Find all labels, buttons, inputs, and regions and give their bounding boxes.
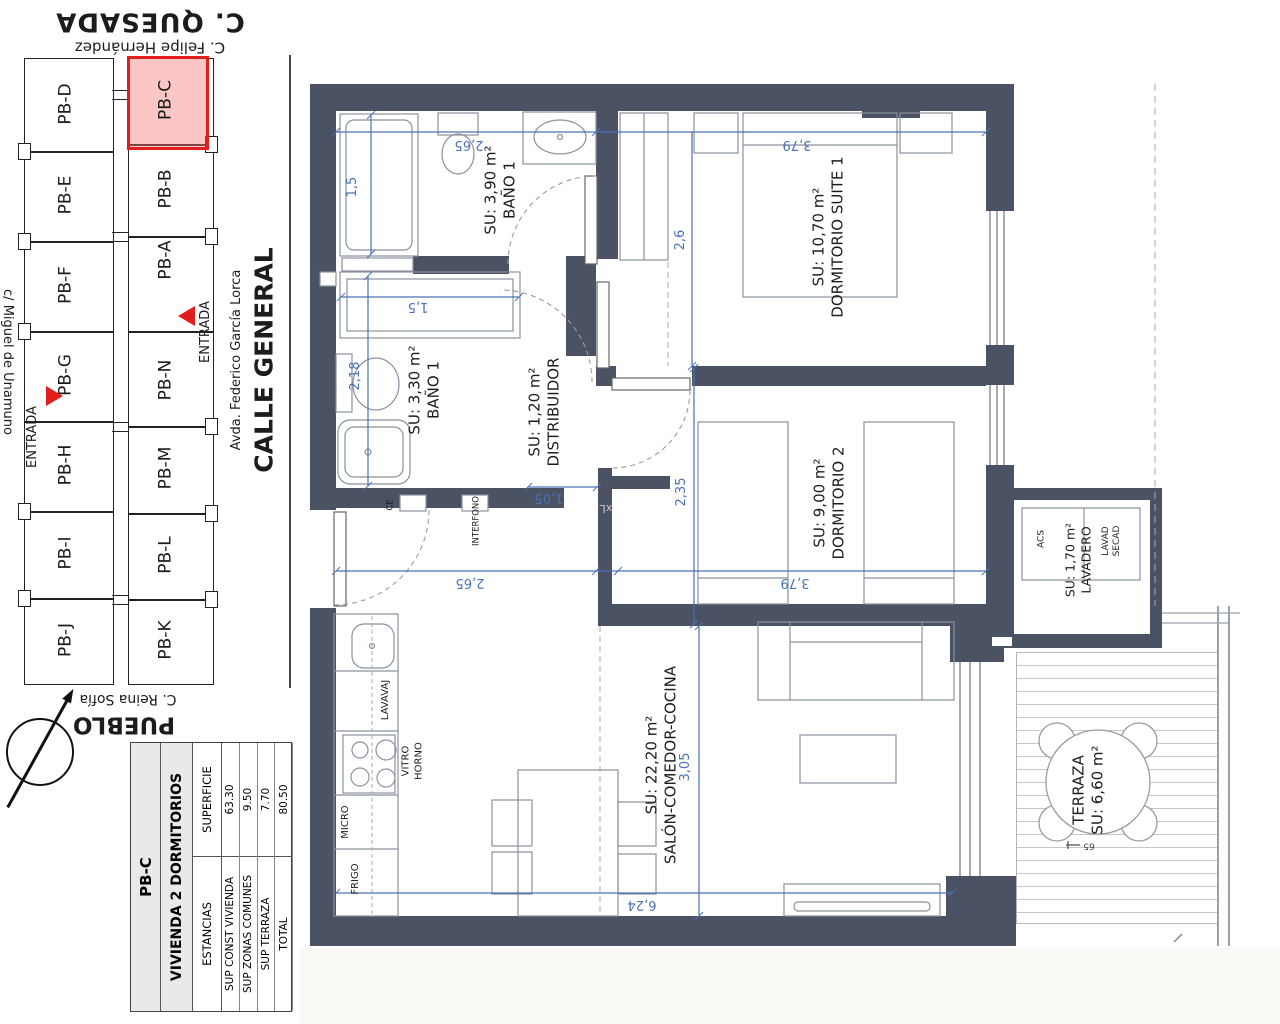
facade-notch (205, 591, 218, 608)
surface-table-col-rooms: ESTANCIAS (193, 856, 221, 1011)
walls (310, 84, 1162, 946)
washer-dryer-label: LAVADSECAD (1101, 526, 1124, 557)
street-top-label: C. QUESADA (55, 5, 245, 38)
corridor-connector (112, 595, 128, 605)
hob-oven-label: VITROHORNO (401, 742, 426, 780)
street-left-label: c/ Miguel de Unamuno (0, 289, 15, 435)
room-label-laundry: SU: 1,70 m²LAVADERO (1062, 523, 1093, 597)
dim-265-top: 2,65 (455, 136, 484, 152)
bed2-right (864, 422, 954, 604)
unit-label-pbf[interactable]: PB-F (55, 266, 76, 304)
unit-label-pbc[interactable]: PB-C (155, 80, 176, 120)
microwave-label: MICRO (340, 805, 353, 838)
entrance-left-label: ENTRADA (25, 406, 41, 468)
laundry-vent-opening (992, 637, 1012, 646)
facade-notch (205, 505, 218, 522)
nightstand-right (900, 113, 952, 153)
room-label-bedroom2: SU: 9,00 m²DORMITORIO 2 (810, 446, 848, 559)
street-top-sub-label: C. Felipe Hernández (75, 38, 225, 57)
dishwasher-label: LAVAVAJ (380, 680, 393, 720)
unit-label-pba[interactable]: PB-A (155, 240, 176, 279)
intercom-label: INTERFONO (472, 496, 483, 546)
surface-table: PB-C VIVIENDA 2 DORMITORIOS ESTANCIAS SU… (130, 742, 292, 1012)
corridor-connector (112, 232, 128, 242)
chair (492, 800, 532, 846)
surface-row: SUP ZONAS COMUNES9.50 (240, 743, 258, 1011)
surface-row: TOTAL80.50 (275, 743, 293, 1011)
room-label-suite: SU: 10,70 m²DORMITORIO SUITE 1 (809, 156, 847, 317)
room-label-hall: SU: 1,20 m²DISTRIBUIDOR (525, 358, 563, 467)
dim-105: 1,05 (535, 489, 564, 505)
surface-table-unit: PB-C (131, 743, 161, 1011)
nightstand-left (694, 113, 738, 153)
dim-379-mid: 3,79 (781, 574, 810, 590)
entrance-right-label: ENTRADA (198, 301, 214, 363)
surface-row: SUP CONST VIVIENDA63.30 (222, 743, 240, 1011)
floorplan-sheet: C. QUESADA C. Felipe Hernández c/ Miguel… (0, 0, 1280, 1024)
entrance-right-arrow-icon (178, 306, 195, 326)
facade-notch (205, 228, 218, 245)
entrance-door-leaf (334, 512, 346, 606)
surface-row: SUP TERRAZA7.70 (258, 743, 276, 1011)
room-label-terrace: TERRAZASU: 6,60 m² (1069, 745, 1107, 834)
street-bottom-label: C. Reina Sofía (79, 689, 176, 707)
unit-label-pbe[interactable]: PB-E (55, 176, 76, 215)
dim-265-mid: 2,65 (456, 574, 485, 590)
room-label-bath1: SU: 3,90 m²BAÑO 1 (481, 145, 519, 234)
dim-218: 2,18 (348, 362, 364, 391)
dim-305: 3,05 (678, 753, 694, 782)
kitchen-sink (352, 624, 394, 668)
door-leaves (334, 176, 690, 606)
facade-notch (18, 590, 31, 607)
street-main-label: CALLE GENERAL (248, 247, 279, 472)
unit-label-pbi[interactable]: PB-I (55, 536, 76, 569)
unit-label-pbb[interactable]: PB-B (155, 169, 176, 208)
electric-panel-label: CE (386, 499, 397, 510)
washbasin-2 (338, 420, 410, 484)
facade-notch (205, 418, 218, 435)
dim-624: 6,24 (628, 896, 657, 912)
kitchen-counter (334, 614, 398, 916)
bed2-left (698, 422, 788, 604)
dim-26: 2,6 (673, 230, 689, 251)
coffee-table (800, 735, 896, 783)
shower-glass (342, 258, 413, 271)
door-leaf (585, 176, 597, 264)
entrance-left-arrow-icon (46, 386, 63, 406)
unit-label-pbd[interactable]: PB-D (55, 83, 76, 124)
dim-235: 2,35 (674, 478, 690, 507)
wall-box (320, 272, 336, 286)
fridge-label: FRIGO (350, 863, 363, 894)
unit-label-pbm[interactable]: PB-M (155, 447, 176, 490)
door-leaf (597, 282, 609, 368)
sofa (758, 622, 954, 700)
level-mark-label: 65 (1083, 839, 1094, 850)
hob (343, 735, 395, 793)
chair (492, 852, 532, 894)
facade-notch (18, 143, 31, 160)
unit-label-pbl[interactable]: PB-L (155, 536, 176, 574)
area-bottom-label: PUEBLO (73, 710, 175, 739)
fixtures (320, 112, 1140, 916)
facade-notch (18, 233, 31, 250)
room-label-bath2: SU: 3,30 m²BAÑO 1 (405, 345, 443, 434)
shower-tray (340, 272, 520, 338)
dining-table (518, 770, 618, 916)
surface-table-col-area: SUPERFICIE (193, 743, 221, 856)
dim-15-closet: 1,5 (345, 177, 361, 198)
unit-label-pbk[interactable]: PB-K (155, 620, 176, 659)
water-heater-label: ACS (1036, 530, 1047, 548)
unit-label-pbn[interactable]: PB-N (155, 360, 176, 401)
avenue-label: Avda. Federico García Lorca (229, 270, 245, 451)
corridor-connector (112, 422, 128, 432)
facade-notch (18, 323, 31, 340)
corridor-connector (112, 90, 128, 100)
electric-panel-box (400, 495, 426, 511)
dim-15-shower: 1,5 (408, 298, 429, 314)
unit-label-pbj[interactable]: PB-J (55, 623, 76, 657)
door-leaf (612, 378, 690, 390)
unit-label-pbh[interactable]: PB-H (55, 445, 76, 486)
facade-notch (18, 503, 31, 520)
room-label-living: SU: 22,20 m²SALÓN-COMEDOR-COCINA (642, 666, 680, 864)
street-boundary-line (289, 55, 291, 688)
surface-table-type: VIVIENDA 2 DORMITORIOS (161, 743, 193, 1011)
dim-379-top: 3,79 (783, 136, 812, 152)
watermark-mark: xL (600, 501, 613, 515)
